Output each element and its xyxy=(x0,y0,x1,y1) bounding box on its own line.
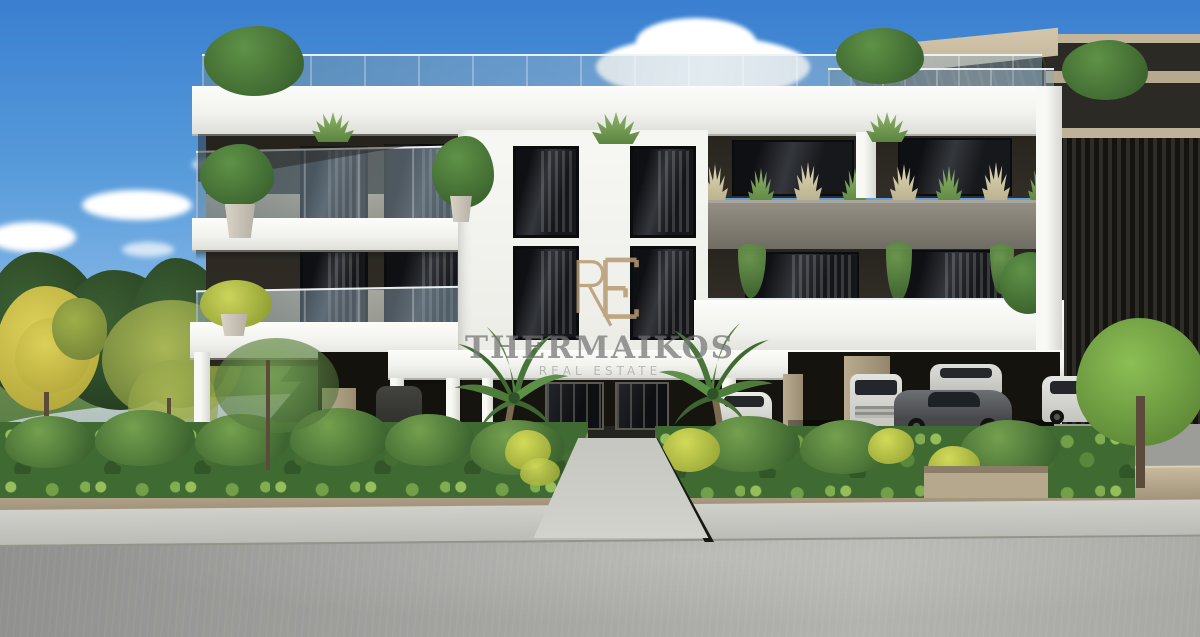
curtain xyxy=(658,151,692,233)
louver-building-cap xyxy=(1058,128,1200,138)
slender-tree-trunk xyxy=(266,360,270,470)
roof-palm-plant xyxy=(204,26,304,96)
planter-curb-box xyxy=(924,466,1048,498)
render-canvas: THERMAIKOS REAL ESTATE xyxy=(0,0,1200,637)
tower-window xyxy=(513,146,579,238)
watermark-tagline-text: REAL ESTATE xyxy=(380,364,820,384)
olive-tree-canopy xyxy=(52,298,107,360)
car-windows xyxy=(940,368,992,378)
curtain xyxy=(792,255,854,303)
cloud xyxy=(122,242,174,257)
right-tree-trunk xyxy=(1136,396,1145,488)
roof-palm-plant xyxy=(836,28,924,84)
car-cabin xyxy=(928,392,980,407)
car-windshield xyxy=(855,380,897,395)
cloud xyxy=(82,190,192,220)
asphalt-road xyxy=(0,536,1200,637)
car-wheel xyxy=(1050,410,1064,424)
car-grille xyxy=(855,406,897,418)
tower-window xyxy=(630,146,696,238)
terrace-window xyxy=(732,140,854,196)
slender-tree-canopy xyxy=(214,338,339,433)
curtain xyxy=(541,151,575,233)
facade-planter-box xyxy=(696,200,1062,249)
roof-palm-plant xyxy=(1062,40,1148,100)
balcony-plant xyxy=(200,144,274,206)
re-monogram-logo xyxy=(558,252,642,330)
slab-shadow xyxy=(196,250,476,260)
